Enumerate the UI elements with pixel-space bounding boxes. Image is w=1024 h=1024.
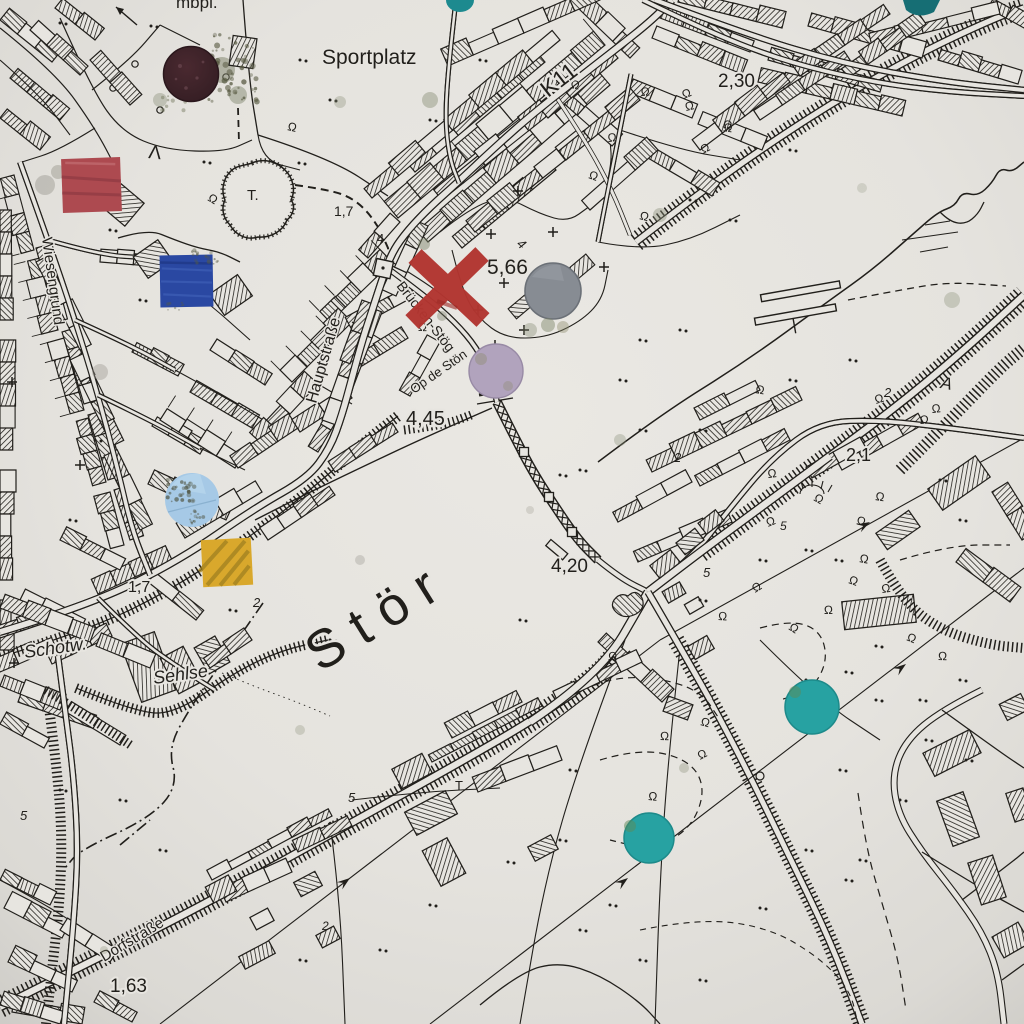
svg-text:T: T xyxy=(455,778,463,793)
svg-text:Ω: Ω xyxy=(824,603,833,617)
svg-text:1,7: 1,7 xyxy=(334,203,354,219)
svg-text:Ω: Ω xyxy=(608,649,618,663)
svg-text:2: 2 xyxy=(883,385,892,400)
svg-text:Ω: Ω xyxy=(881,581,892,596)
svg-text:T.: T. xyxy=(247,187,259,204)
svg-text:Ω: Ω xyxy=(767,466,777,481)
svg-text:Ω: Ω xyxy=(660,729,669,743)
svg-text:Ω: Ω xyxy=(931,401,941,416)
svg-text:Ω: Ω xyxy=(718,609,728,623)
svg-text:5: 5 xyxy=(703,565,711,580)
svg-text:4,45: 4,45 xyxy=(406,408,445,430)
svg-text:Ω: Ω xyxy=(648,789,658,804)
svg-text:Sportplatz: Sportplatz xyxy=(322,46,417,69)
svg-text:Ω: Ω xyxy=(640,85,650,99)
svg-text:Λ: Λ xyxy=(147,142,162,164)
svg-text:2: 2 xyxy=(673,450,682,465)
svg-text:5,66: 5,66 xyxy=(487,256,528,279)
svg-text:2,30: 2,30 xyxy=(718,71,755,92)
svg-text:1,7: 1,7 xyxy=(128,579,150,596)
svg-text:5: 5 xyxy=(348,790,356,805)
svg-text:Ω: Ω xyxy=(938,649,947,663)
svg-text:mbpl.: mbpl. xyxy=(176,0,218,12)
svg-text:1,63: 1,63 xyxy=(110,976,147,997)
svg-text:2: 2 xyxy=(252,595,261,610)
svg-text:4,20: 4,20 xyxy=(551,556,588,577)
svg-text:2: 2 xyxy=(321,919,329,933)
svg-text:5: 5 xyxy=(20,808,28,823)
svg-text:Ω: Ω xyxy=(919,413,929,427)
svg-text:2,1: 2,1 xyxy=(846,445,871,465)
svg-text:4: 4 xyxy=(377,231,384,246)
svg-text:5: 5 xyxy=(780,519,787,533)
svg-text:Ω: Ω xyxy=(607,130,617,145)
